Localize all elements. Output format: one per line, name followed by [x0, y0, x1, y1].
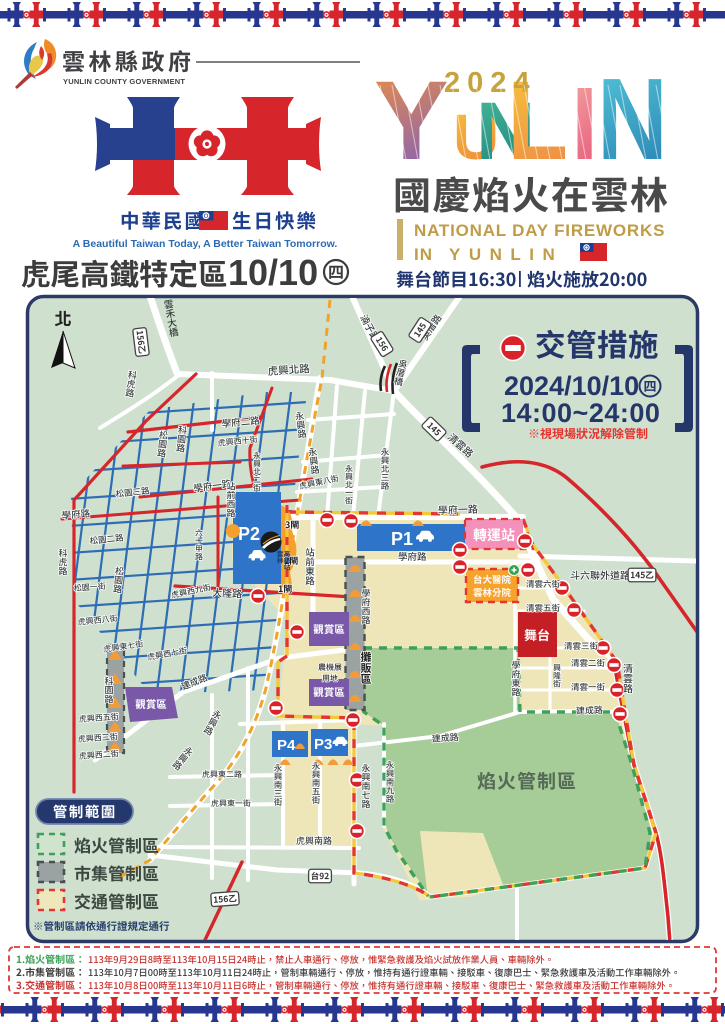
svg-text:YUNLIN: YUNLIN — [449, 245, 563, 264]
svg-text:IN: IN — [414, 245, 433, 264]
svg-text:P1: P1 — [391, 529, 413, 549]
svg-text:NATIONAL DAY FIREWORKS: NATIONAL DAY FIREWORKS — [414, 221, 665, 240]
svg-text:Y: Y — [374, 58, 449, 183]
svg-text:P3: P3 — [314, 736, 332, 753]
svg-text:2024/10/10: 2024/10/10 — [504, 371, 639, 401]
svg-text:A Beautiful Taiwan Today, A Be: A Beautiful Taiwan Today, A Better Taiwa… — [73, 238, 338, 250]
svg-text:P4: P4 — [277, 737, 296, 754]
svg-text:10/10: 10/10 — [228, 252, 318, 293]
svg-text:I: I — [571, 67, 598, 182]
svg-text:YUNLIN COUNTY GOVERNMENT: YUNLIN COUNTY GOVERNMENT — [63, 77, 185, 86]
svg-text:14:00~24:00: 14:00~24:00 — [501, 398, 660, 428]
svg-text:P2: P2 — [238, 524, 260, 544]
svg-text:N: N — [597, 54, 668, 183]
